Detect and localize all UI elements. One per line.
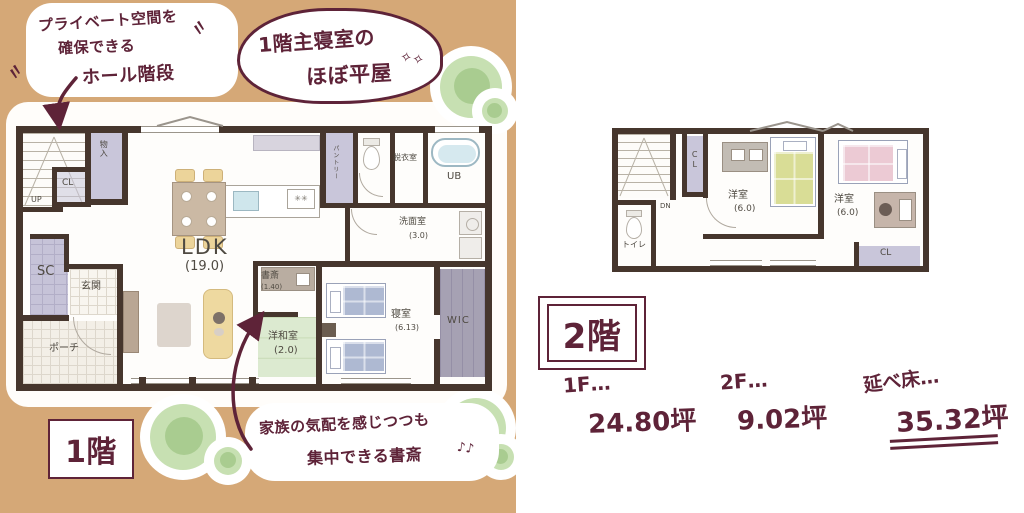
area-1f-value: 24.80坪 [587, 400, 696, 441]
bubble-text: プライベート空間を [37, 5, 178, 36]
dining-table [172, 182, 226, 236]
area-1f-label: 1F… [562, 370, 611, 397]
tv-board [123, 291, 139, 353]
room-label: 洋室 [728, 190, 748, 202]
floorplan-illustration: プライベート空間を 確保できる ホール階段 〃 〃 1階主寝室の ほぼ平屋 ✧✧ [0, 0, 1024, 513]
tree-icon [214, 447, 242, 475]
bed [326, 339, 386, 374]
sliding-window [770, 260, 816, 266]
floor2-tag: 2階 [538, 296, 646, 370]
bubble-text: 家族の気配を感じつつも [259, 409, 430, 439]
room-label: CL [880, 248, 891, 258]
cat-icon [214, 328, 224, 336]
room-label: CL [690, 150, 699, 170]
room-size: (6.0) [734, 204, 755, 214]
room-label: 玄関 [81, 281, 101, 293]
room-label: WIC [447, 315, 470, 327]
toilet-icon [363, 146, 380, 170]
area-total-label: 延べ床… [862, 361, 941, 397]
stove-icon: ✳✳ [287, 189, 315, 209]
study-bubble: 家族の気配を感じつつも 集中できる書斎 ♪♪ [245, 403, 499, 481]
room-label: LDK [181, 235, 229, 259]
sliding-window [710, 260, 762, 266]
bed [326, 283, 386, 318]
pantry-room [325, 133, 353, 203]
room-size: (6.0) [837, 208, 858, 218]
toilet-tank [626, 210, 642, 217]
room-size: (19.0) [185, 260, 224, 275]
desk [874, 192, 916, 228]
dining-chair [175, 169, 195, 182]
toilet-tank [363, 138, 380, 146]
sliding-window [341, 378, 411, 384]
bed [770, 137, 816, 207]
bed [838, 140, 908, 184]
floor1-plan: ✳✳ [16, 126, 492, 391]
room-label: 洗面室 [399, 217, 426, 227]
room-label: 洋室 [834, 194, 854, 206]
room-size: (1.40) [261, 283, 282, 291]
room-size: (6.13) [395, 323, 419, 332]
tree-icon [482, 98, 508, 124]
kitchen-cabinet [253, 135, 320, 151]
room-label: DN [660, 202, 671, 210]
desk [722, 142, 768, 172]
rug [157, 303, 191, 347]
room-label: 物入 [99, 140, 108, 158]
bubble-text: ホール階段 [81, 59, 175, 90]
floor1-tag: 1階 [48, 419, 134, 479]
toilet-icon [626, 217, 642, 239]
bubble-text: ほぼ平屋 [305, 57, 392, 91]
hall-stairs-bubble: プライベート空間を 確保できる ホール階段 [26, 3, 238, 97]
vanity [459, 237, 482, 259]
door-arc [351, 209, 377, 235]
room-label: UB [447, 171, 461, 183]
room-label: 書斎 [261, 271, 279, 281]
note-icon: ♪♪ [456, 440, 476, 457]
area-total-value: 35.32坪 [895, 395, 1009, 440]
window [141, 126, 219, 133]
bathtub [431, 138, 480, 167]
floor-tag-text: 1階 [65, 427, 117, 471]
door-arc [359, 173, 383, 197]
tree-icon [150, 404, 216, 470]
washer [459, 211, 482, 235]
window [435, 126, 479, 133]
bubble-text: 集中できる書斎 [307, 441, 423, 469]
door-arc [706, 198, 736, 228]
room-label: UP [31, 195, 42, 204]
floor2-plan: DN トイレ CL 洋室 (6.0) 洋室 (6.0) CL [612, 128, 929, 272]
room-label: 洋和室 [268, 331, 298, 343]
room-size: (2.0) [274, 345, 298, 357]
floor-tag-text: 2階 [563, 309, 622, 358]
bubble-text: 確保できる [58, 35, 136, 59]
room-label: 寝室 [391, 309, 411, 321]
area-2f-label: 2F… [719, 367, 768, 394]
floor2-tag-inner: 2階 [547, 304, 636, 361]
room-label: 脱衣室 [393, 153, 417, 162]
staircase-down [618, 134, 670, 198]
sparkle-icon: ✧✧ [399, 49, 426, 69]
dining-chair [203, 169, 223, 182]
hiraya-bubble: 1階主寝室の ほぼ平屋 ✧✧ [237, 8, 443, 104]
room-size: (3.0) [409, 231, 428, 240]
room-label: ポーチ [49, 343, 79, 355]
room-label: CL [62, 178, 73, 188]
room-label: パントリー [331, 145, 338, 180]
kitchen-sink [233, 191, 259, 211]
room-label: トイレ [622, 240, 646, 249]
bubble-text: 1階主寝室の [257, 21, 376, 58]
area-2f-value: 9.02坪 [736, 397, 827, 437]
nightstand [322, 323, 336, 337]
sofa [203, 289, 233, 359]
room-label: SC [37, 265, 54, 280]
